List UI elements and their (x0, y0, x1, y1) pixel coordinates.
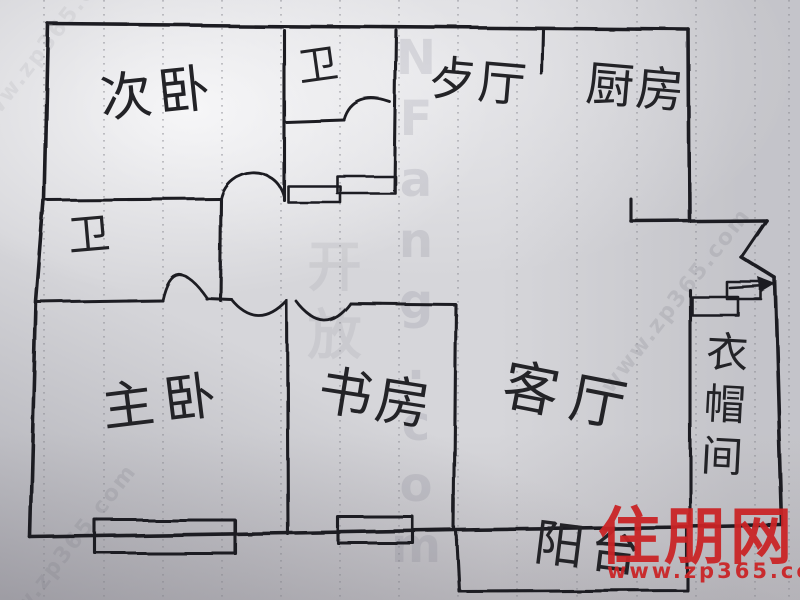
room-label-cloakroom: 衣帽间 (696, 329, 746, 487)
door-arc-master-bedroom (231, 299, 287, 316)
room-label-secondary-bedroom: 次卧 (98, 62, 219, 126)
wall-outer-top (48, 24, 688, 29)
wall-master-study-divider (287, 301, 288, 534)
door-arc-study (297, 302, 351, 321)
wall-kitchen-bottom (631, 220, 766, 221)
door-arc-bathroom-upper (344, 98, 390, 120)
wall-cloakroom-right (775, 278, 782, 525)
wall-outer-right-upper (688, 29, 689, 221)
room-label-bathroom-hall: 卫 (66, 212, 112, 258)
wall-bathroom-upper-inner (286, 120, 344, 122)
floorplan-photo: NFang.com 开放 www.zp365.com www.zp365.com… (0, 0, 800, 600)
room-label-kitchen: 厨房 (584, 60, 688, 117)
sill-bathroom-upper-a (288, 186, 340, 202)
wall-corridor-bottom (351, 304, 456, 305)
entry-door-zigzag (741, 220, 775, 278)
wall-study-living-divider (454, 305, 456, 530)
room-label-bathroom-upper: 卫 (295, 43, 340, 88)
watermark-brand-url: www.zp365.com (607, 561, 800, 582)
wall-secondary-bedroom-bottom (44, 199, 221, 200)
wall-bathroom-hall-bottom (36, 300, 162, 302)
room-label-dining: 歺厅 (426, 54, 530, 111)
wall-dining-kitchen-stub (542, 30, 543, 74)
wall-hall-divider (220, 199, 221, 300)
wall-bathroom-upper-right (394, 30, 396, 190)
room-label-master-bedroom: 主卧 (99, 369, 228, 436)
sill-bathroom-upper-b (337, 176, 395, 193)
door-arc-secondary-bedroom (221, 173, 284, 199)
door-arc-bathroom-hall (162, 274, 206, 300)
wall-outer-left (30, 24, 48, 537)
